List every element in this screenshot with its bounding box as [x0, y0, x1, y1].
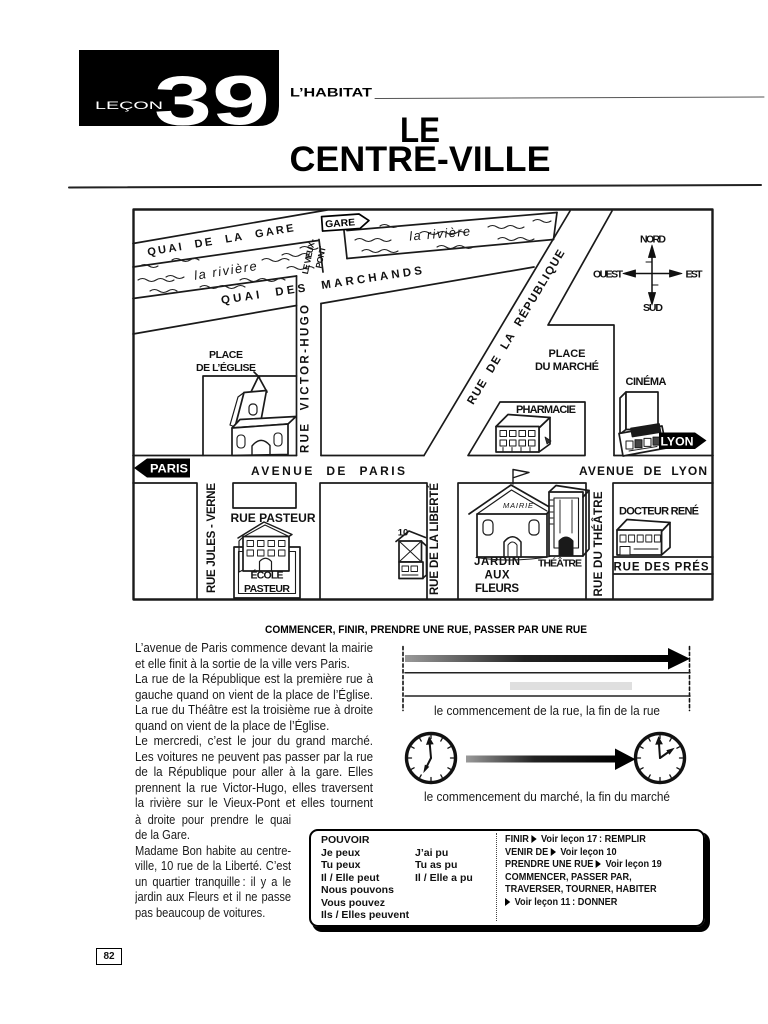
svg-text:NORD: NORD	[640, 234, 666, 246]
svg-text:LEÇON: LEÇON	[95, 100, 163, 112]
svg-text:RUE JULES - VERNE: RUE JULES - VERNE	[206, 483, 218, 593]
svg-text:THÉÂTRE: THÉÂTRE	[538, 557, 582, 570]
svg-text:PHARMACIE: PHARMACIE	[516, 404, 576, 416]
svg-text:CINÉMA: CINÉMA	[626, 375, 667, 388]
svg-text:DU MARCHÉ: DU MARCHÉ	[535, 360, 599, 373]
svg-text:RUE PASTEUR: RUE PASTEUR	[231, 511, 316, 525]
svg-text:AVENUE DE PARIS: AVENUE DE PARIS	[251, 464, 405, 478]
svg-text:DE L’ÉGLISE: DE L’ÉGLISE	[196, 361, 256, 374]
svg-text:RUE DE LA LIBERTÉ: RUE DE LA LIBERTÉ	[428, 483, 441, 595]
svg-text:PONT: PONT	[313, 245, 328, 269]
svg-text:AUX: AUX	[485, 570, 510, 582]
svg-text:L’HABITAT: L’HABITAT	[290, 88, 372, 100]
svg-text:le commencement de la rue, la: le commencement de la rue, la fin de la …	[434, 703, 660, 718]
svg-text:PASTEUR: PASTEUR	[244, 583, 290, 595]
svg-text:GARE: GARE	[325, 217, 356, 230]
svg-text:MAIRIE: MAIRIE	[503, 501, 534, 510]
svg-text:ÉCOLE: ÉCOLE	[251, 569, 284, 582]
svg-text:RUE DU THÉÂTRE: RUE DU THÉÂTRE	[592, 491, 605, 596]
svg-text:RUE DES PRÉS: RUE DES PRÉS	[614, 561, 709, 574]
svg-text:SUD: SUD	[643, 302, 663, 314]
svg-text:CENTRE-VILLE: CENTRE-VILLE	[290, 140, 551, 179]
svg-text:39: 39	[154, 62, 270, 140]
svg-text:DOCTEUR RENÉ: DOCTEUR RENÉ	[619, 505, 699, 518]
svg-text:LYON: LYON	[661, 437, 694, 449]
svg-text:RUE DE LA RÉPUBLIQUE: RUE DE LA RÉPUBLIQUE	[465, 247, 568, 407]
svg-text:PLACE: PLACE	[549, 348, 586, 360]
svg-text:PARIS: PARIS	[150, 464, 188, 476]
svg-text:FLEURS: FLEURS	[475, 583, 519, 595]
svg-text:la rivière: la rivière	[409, 223, 471, 243]
svg-text:EST: EST	[686, 269, 704, 281]
svg-text:AVENUE DE LYON: AVENUE DE LYON	[579, 464, 707, 478]
svg-text:10: 10	[398, 528, 409, 539]
svg-text:COMMENCER, FINIR, PRENDRE UNE: COMMENCER, FINIR, PRENDRE UNE RUE, PASSE…	[265, 624, 587, 636]
svg-text:OUEST: OUEST	[593, 269, 624, 281]
svg-text:le commencement du marché, la: le commencement du marché, la fin du mar…	[424, 789, 670, 804]
svg-text:RUE VICTOR-HUGO: RUE VICTOR-HUGO	[300, 305, 312, 453]
svg-text:PLACE: PLACE	[209, 349, 243, 361]
